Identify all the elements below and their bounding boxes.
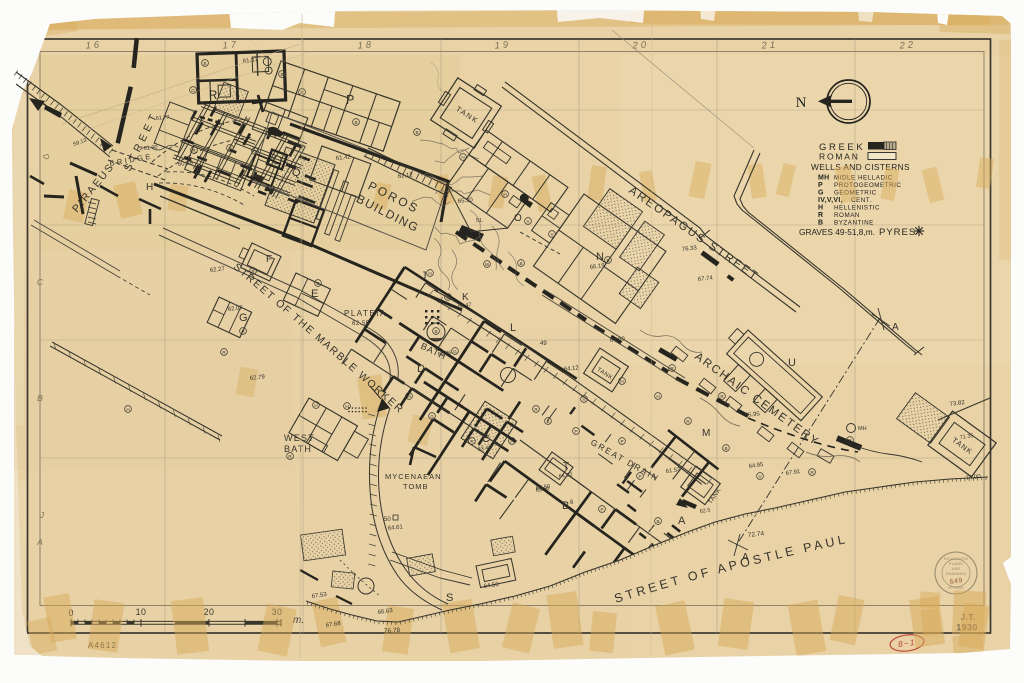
svg-text:20: 20	[631, 39, 649, 51]
svg-text:G: G	[253, 149, 257, 154]
svg-text:51.: 51.	[476, 218, 484, 224]
svg-text:B: B	[562, 500, 569, 512]
svg-text:A: A	[678, 515, 686, 527]
svg-text:D: D	[417, 363, 425, 375]
svg-text:H: H	[620, 379, 623, 384]
svg-text:L: L	[510, 322, 516, 334]
svg-text:IV,V,VI,: IV,V,VI,	[818, 197, 843, 204]
svg-text:17: 17	[222, 39, 239, 51]
svg-text:TOMB: TOMB	[403, 482, 429, 491]
svg-text:B: B	[606, 258, 609, 263]
svg-text:8~1: 8~1	[897, 637, 916, 649]
svg-text:21: 21	[760, 39, 778, 51]
svg-text:C: C	[37, 277, 44, 287]
svg-text:B: B	[354, 120, 357, 125]
svg-text:H: H	[126, 407, 129, 412]
svg-text:MYCENAEAN: MYCENAEAN	[385, 472, 442, 481]
svg-text:WEST: WEST	[284, 433, 315, 443]
svg-text:A: A	[36, 537, 43, 547]
svg-text:B: B	[434, 329, 437, 334]
svg-text:EXCAVATIONS: EXCAVATIONS	[944, 557, 968, 561]
svg-text:H: H	[345, 404, 348, 409]
svg-text:GRAVES 49-51,8,m.: GRAVES 49-51,8,m.	[799, 227, 875, 237]
svg-text:E: E	[311, 288, 318, 300]
svg-text:PYRES: PYRES	[879, 227, 916, 238]
svg-text:20: 20	[204, 607, 215, 617]
svg-text:P: P	[600, 507, 603, 512]
svg-text:G: G	[430, 414, 434, 419]
svg-text:G: G	[818, 190, 824, 197]
svg-text:B: B	[37, 393, 43, 403]
svg-text:R: R	[209, 90, 217, 102]
svg-text:18: 18	[357, 39, 374, 51]
svg-text:H: H	[510, 439, 513, 444]
svg-text:ROMAN: ROMAN	[834, 212, 860, 219]
svg-text:W: W	[485, 262, 490, 267]
svg-text:AND: AND	[952, 567, 961, 571]
svg-text:B: B	[316, 281, 319, 286]
svg-text:50: 50	[384, 517, 391, 523]
svg-text:M: M	[702, 428, 710, 439]
svg-text:N: N	[796, 95, 807, 111]
svg-text:B: B	[519, 261, 522, 266]
svg-text:BATH: BATH	[284, 444, 312, 454]
svg-text:B: B	[546, 419, 549, 424]
svg-text:P: P	[620, 439, 623, 444]
svg-text:J: J	[421, 270, 427, 282]
svg-text:G: G	[453, 349, 457, 354]
svg-text:H: H	[428, 271, 431, 276]
svg-text:N: N	[596, 251, 604, 263]
svg-text:H: H	[503, 192, 506, 197]
svg-text:G: G	[446, 295, 450, 300]
svg-text:16: 16	[85, 39, 102, 51]
svg-text:ROMAN: ROMAN	[819, 152, 860, 162]
svg-text:H: H	[461, 155, 464, 160]
svg-text:G: G	[239, 312, 248, 324]
svg-text:P: P	[818, 182, 823, 189]
svg-text:P: P	[346, 93, 354, 107]
svg-text:H: H	[407, 394, 410, 399]
svg-text:Q: Q	[292, 167, 301, 179]
svg-text:P: P	[638, 474, 641, 479]
svg-text:C: C	[482, 433, 490, 445]
svg-text:PLATEIA: PLATEIA	[344, 309, 387, 318]
svg-text:PLANS: PLANS	[949, 562, 963, 566]
svg-text:B: B	[724, 446, 727, 451]
svg-text:H: H	[656, 394, 659, 399]
svg-text:B: B	[203, 61, 206, 66]
svg-text:H: H	[146, 182, 153, 193]
svg-text:49: 49	[540, 341, 547, 347]
svg-text:O: O	[514, 213, 522, 224]
svg-text:76.78: 76.78	[384, 627, 401, 635]
svg-text:T: T	[563, 461, 569, 472]
svg-text:MH: MH	[818, 175, 830, 182]
svg-text:22: 22	[898, 39, 916, 51]
svg-text:A: A	[892, 322, 899, 333]
svg-text:H: H	[228, 146, 231, 151]
svg-text:MH: MH	[858, 426, 867, 432]
svg-text:P: P	[574, 429, 577, 434]
svg-text:B: B	[415, 130, 418, 135]
svg-text:R: R	[818, 212, 823, 219]
svg-text:H: H	[818, 205, 823, 212]
svg-text:62.55: 62.55	[352, 321, 370, 327]
svg-text:ATHENS: ATHENS	[948, 586, 964, 590]
svg-text:DRAWINGS: DRAWINGS	[946, 572, 967, 576]
svg-text:10: 10	[136, 607, 147, 617]
svg-text:HELLENISTIC: HELLENISTIC	[834, 205, 880, 212]
svg-text:B: B	[656, 519, 659, 524]
svg-text:U: U	[788, 357, 796, 369]
svg-text:BYZANTINE: BYZANTINE	[834, 220, 874, 227]
svg-text:K: K	[462, 292, 469, 303]
svg-text:19: 19	[494, 39, 511, 51]
svg-text:F: F	[266, 254, 272, 265]
svg-text:B: B	[251, 269, 254, 274]
svg-text:S: S	[446, 592, 453, 604]
svg-text:B: B	[818, 220, 823, 227]
svg-text:H: H	[314, 403, 317, 408]
